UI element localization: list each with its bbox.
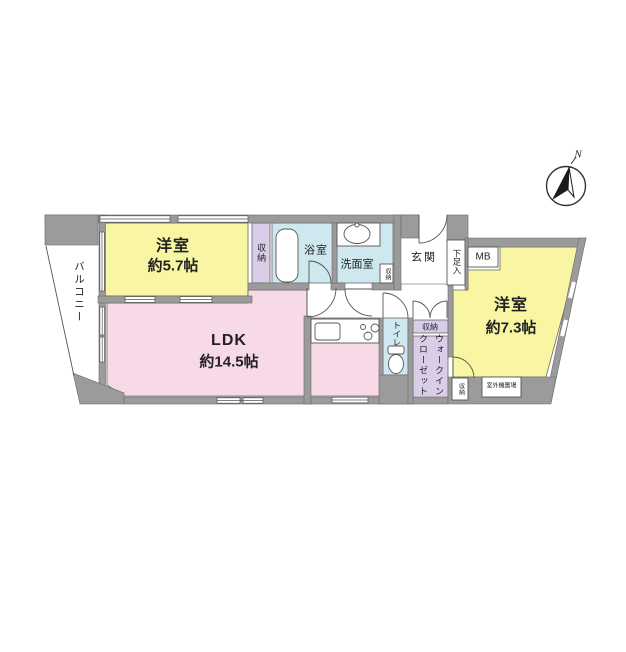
compass xyxy=(547,157,586,206)
wall-entrance-block xyxy=(447,215,468,240)
bedroom2-size-label: 約7.3帖 xyxy=(486,319,537,336)
washroom-label: 洗面室 xyxy=(341,259,374,272)
outdoor-unit-label: 室外機置場 xyxy=(486,384,516,391)
washroom-storage-label: 収納 xyxy=(383,268,390,280)
floor-plan: バルコニー 洋室 約5.7帖 収納 浴室 洗面室 収納 玄関 下足入 MB 洋室… xyxy=(0,0,626,652)
wall-toilet-bottom xyxy=(379,375,410,404)
entrance-label: 玄関 xyxy=(411,252,437,265)
small-storage-label: 収納 xyxy=(457,383,464,395)
washbasin-faucet xyxy=(355,223,359,227)
wall-bath-ldk xyxy=(248,283,309,290)
ldk-name-label: LDK xyxy=(211,332,247,350)
wall-entrance-left-block xyxy=(401,215,419,238)
ldk-size-label: 約14.5帖 xyxy=(199,353,258,370)
wall-shoe-bedroom2 xyxy=(465,238,468,290)
balcony-label: バルコニー xyxy=(73,261,85,324)
wall-bath-hall xyxy=(331,283,345,290)
wall-top-left-block xyxy=(45,215,98,245)
entrance-door xyxy=(419,215,447,243)
north-label: N xyxy=(574,149,581,162)
bedroom1-name-label: 洋室 xyxy=(156,238,190,256)
bedroom1-size-label: 約5.7帖 xyxy=(148,257,199,274)
hall-storage-doors xyxy=(413,301,447,318)
toilet-label: トイレ xyxy=(391,321,401,347)
kitchen-sink xyxy=(315,323,340,340)
hall-storage-label: 収納 xyxy=(422,322,438,331)
balcony-railing xyxy=(46,246,74,376)
wall-bath-washroom xyxy=(332,223,337,283)
wall-top-right xyxy=(468,238,586,247)
wall-ldk-kitchen xyxy=(304,316,311,404)
ldk-door xyxy=(307,288,336,317)
wall-washroom-entrance xyxy=(394,215,401,290)
bathroom-label: 浴室 xyxy=(304,245,328,258)
bathtub xyxy=(276,229,298,282)
shoe-cabinet-label: 下足入 xyxy=(451,249,461,275)
washroom-door xyxy=(345,289,372,316)
closet1-label: 収納 xyxy=(256,243,266,263)
toilet-door xyxy=(383,293,408,318)
bedroom2-name-label: 洋室 xyxy=(494,297,528,315)
wall-bedroom1-ldk xyxy=(98,296,252,303)
walk-in-closet-label: ウォークインクローゼット xyxy=(413,334,447,397)
toilet-bowl xyxy=(389,355,404,374)
meter-box-label: MB xyxy=(476,251,491,263)
toilet-tank xyxy=(388,346,404,354)
wall-hall-bedroom2 xyxy=(448,285,453,357)
wall-kitchen-toilet xyxy=(379,318,383,375)
